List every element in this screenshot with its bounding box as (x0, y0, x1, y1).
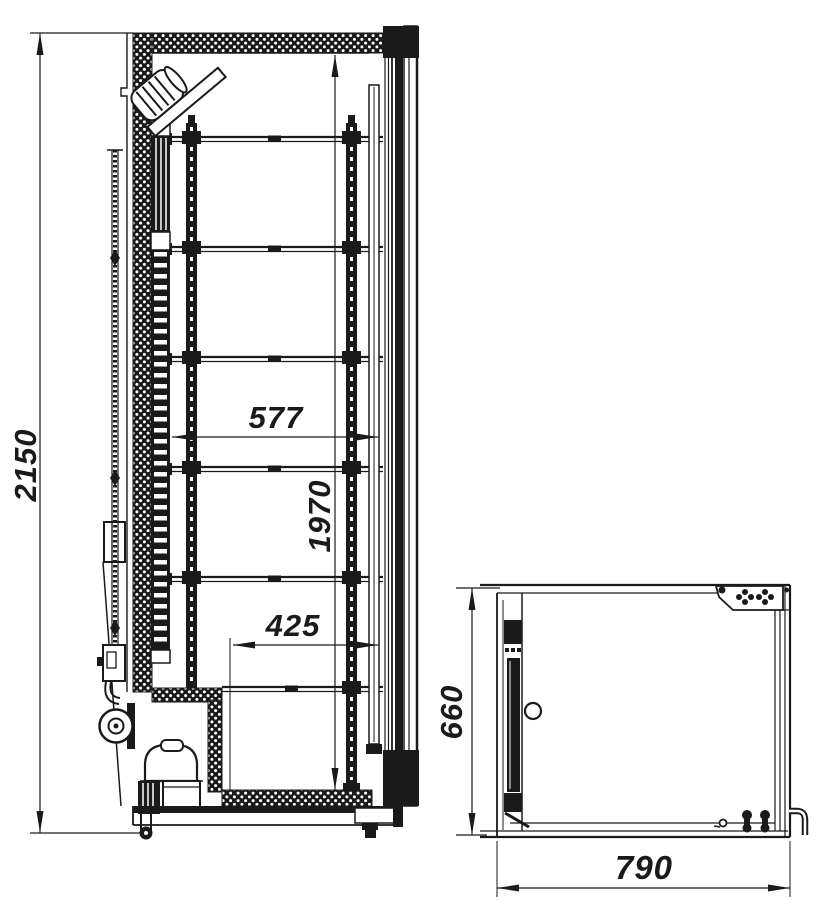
technical-drawing-canvas: 2150 (0, 0, 828, 919)
top-plan-view: 660 790 (434, 585, 805, 897)
hinge-plate (716, 586, 790, 610)
front-foot (362, 823, 378, 830)
door-top-rail (383, 26, 419, 58)
interior-height-label: 1970 (302, 480, 337, 553)
shelf (171, 571, 383, 585)
dimension-interior-height: 1970 (302, 55, 339, 790)
dimension-depth: 660 (434, 588, 500, 835)
insulation-back (133, 33, 152, 692)
shelf (171, 351, 383, 365)
overall-height-label: 2150 (8, 429, 43, 503)
side-section-view: 2150 (8, 26, 419, 840)
dimension-width: 790 (497, 841, 790, 897)
door-gasket-bar (507, 658, 520, 792)
insulation-step-vertical (208, 700, 222, 792)
arrow-left (497, 885, 519, 892)
shelf-bottom (222, 681, 383, 694)
glass-door (366, 26, 419, 806)
depth-label: 660 (434, 685, 469, 740)
arrow-down (469, 813, 476, 835)
door-frame-profile (395, 28, 403, 798)
rear-bracket-lower (103, 645, 125, 681)
arrow-up (332, 55, 339, 77)
shelf (171, 241, 383, 255)
arrow-right (768, 885, 790, 892)
shelf (171, 461, 383, 475)
width-label: 790 (615, 849, 673, 886)
lower-depth-label: 425 (265, 608, 321, 643)
door-knob (525, 703, 541, 719)
arrow-down (332, 768, 339, 790)
evaporator-assembly (151, 118, 170, 663)
insulation-top (133, 33, 400, 53)
insulation-bottom (222, 790, 372, 806)
shelf (171, 131, 383, 145)
arrow-left (233, 642, 255, 649)
base-frame (133, 806, 403, 840)
back-panel (103, 33, 127, 806)
outer-glass-pane (404, 26, 417, 806)
door-bottom-rail (383, 750, 419, 806)
refrigerated-cabinet-drawing: 2150 (0, 0, 828, 919)
arrow-up (469, 588, 476, 610)
arrow-left (172, 434, 194, 441)
arrow-down (37, 811, 44, 833)
rear-condenser (107, 150, 123, 645)
arrow-up (37, 33, 44, 55)
upper-depth-label: 577 (249, 400, 304, 435)
